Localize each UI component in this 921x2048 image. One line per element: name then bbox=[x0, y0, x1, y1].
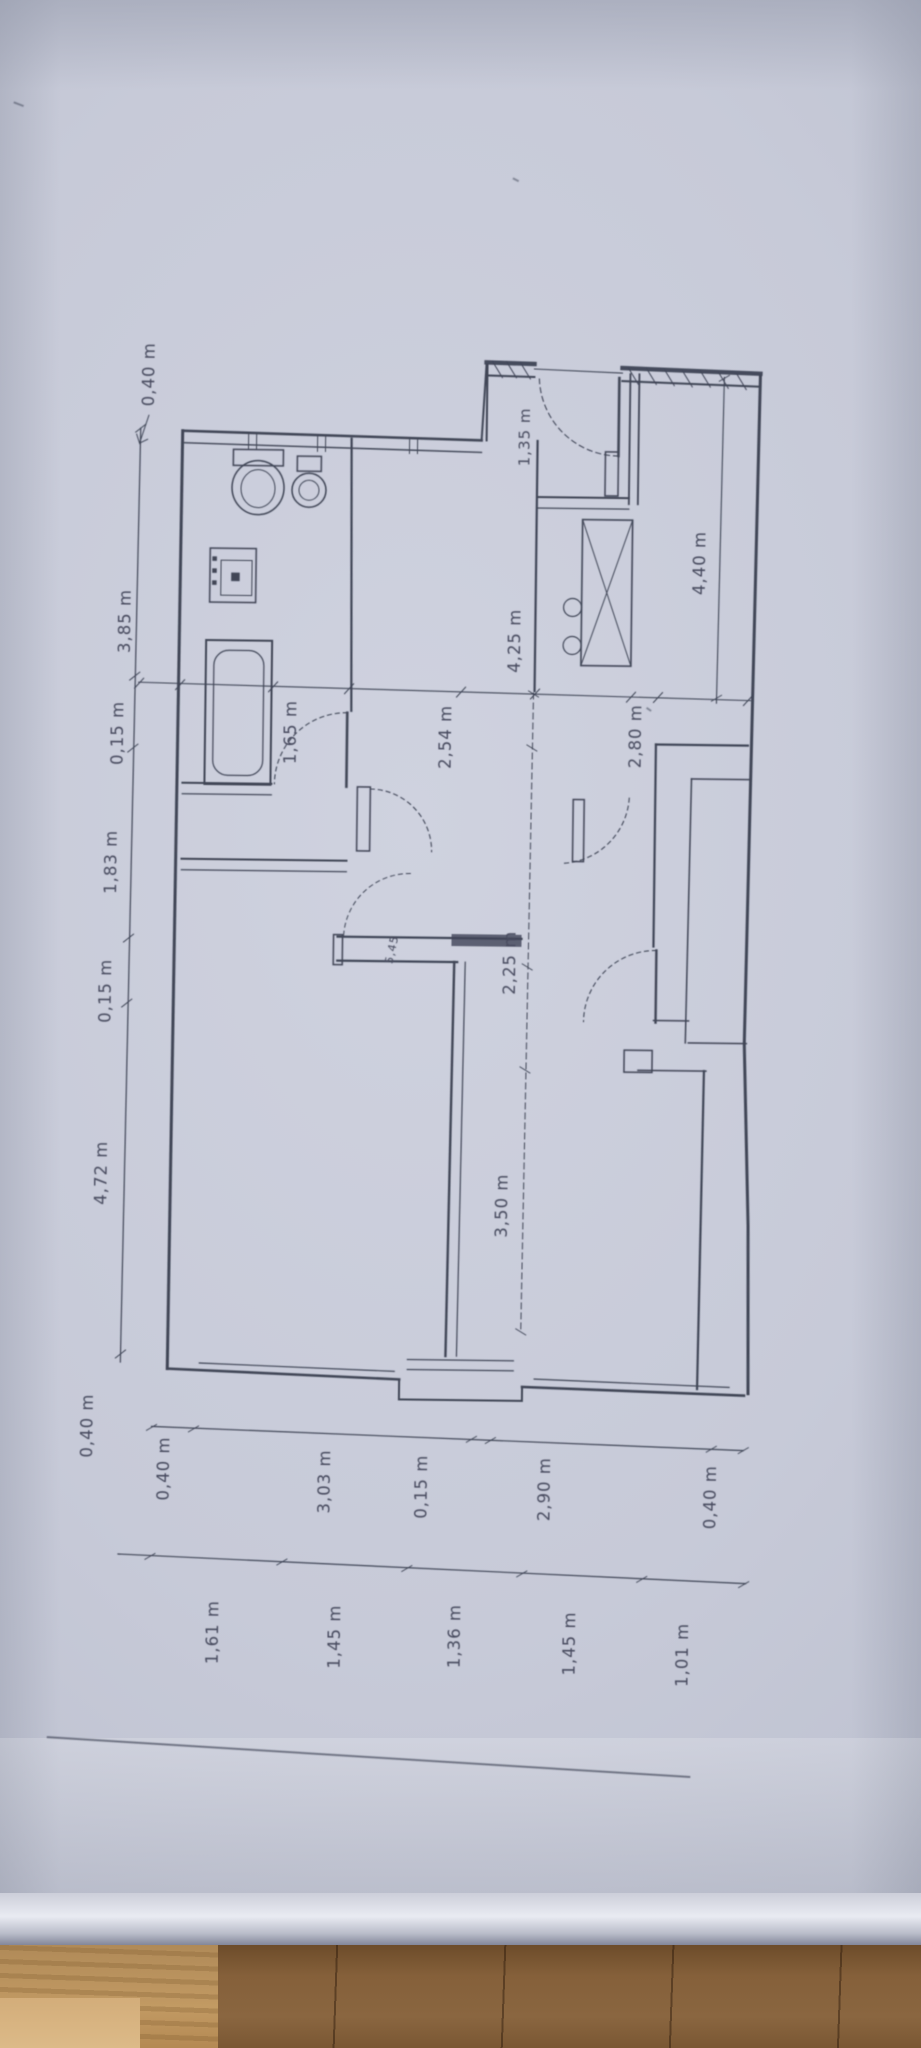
bidet-icon bbox=[292, 456, 327, 507]
vestibule-walls bbox=[486, 364, 640, 509]
toilet-icon bbox=[232, 449, 285, 515]
bathroom-walls bbox=[182, 437, 354, 796]
dim-corridor: 2,25 m bbox=[500, 931, 520, 995]
dim-bottom-outer-0: 0,40 m bbox=[154, 1436, 174, 1500]
kitchen-door bbox=[584, 950, 657, 1023]
central-vertical-dimension-line bbox=[516, 691, 539, 1335]
interior-dimension-line bbox=[134, 678, 752, 706]
dim-left-2: 0,15 m bbox=[108, 701, 128, 765]
dim-bottom-outer-1: 3,03 m bbox=[314, 1449, 334, 1513]
dim-hall: 2,54 m bbox=[436, 705, 456, 769]
dim-bottom-inner-0: 1,61 m bbox=[203, 1600, 223, 1664]
dim-left-1: 3,85 m bbox=[115, 589, 135, 653]
dim-bottom-inner-3: 1,45 m bbox=[560, 1611, 580, 1675]
bottom-dimension-chain-outer bbox=[146, 1424, 748, 1453]
wardrobe-icon bbox=[563, 519, 633, 666]
dim-vestibule: 1,35 m bbox=[515, 407, 534, 466]
floor-plan-drawing: 0,40 m 3,85 m 0,15 m 1,83 m 0,15 m 4,72 … bbox=[0, 0, 921, 2048]
dim-bottom-inner-2: 1,36 m bbox=[445, 1604, 465, 1668]
stray-photocopy-line bbox=[0, 103, 710, 1777]
right-room-walls bbox=[620, 744, 750, 1389]
dim-center-span: 4,25 m bbox=[505, 609, 525, 673]
bottom-dimension-chain-inner bbox=[118, 1553, 749, 1588]
dim-left-3: 1,83 m bbox=[101, 830, 121, 894]
washing-machine-icon bbox=[210, 548, 257, 603]
right-room-door bbox=[562, 797, 629, 864]
dim-left-0: 0,40 m bbox=[139, 342, 159, 406]
dim-bottom-inner-4: 1,01 m bbox=[672, 1623, 692, 1687]
dim-bottom-outer-2: 0,15 m bbox=[411, 1455, 431, 1519]
dim-bottom-outer-4: 0,40 m bbox=[700, 1465, 720, 1529]
dim-right-side: 4,40 m bbox=[690, 531, 710, 595]
right-vertical-dimension-line bbox=[711, 375, 729, 703]
dim-bottom-outer-3: 2,90 m bbox=[534, 1457, 554, 1521]
photo-of-floor-plan: 0,40 m 3,85 m 0,15 m 1,83 m 0,15 m 4,72 … bbox=[0, 0, 921, 2048]
dim-left-4: 0,15 m bbox=[95, 959, 115, 1023]
entrance-door bbox=[538, 377, 619, 456]
left-dimension-chain bbox=[115, 415, 149, 1362]
dim-left-5: 4,72 m bbox=[91, 1141, 111, 1205]
dim-bathroom: 1,65 m bbox=[281, 700, 301, 764]
dim-bottom-inner-1: 1,45 m bbox=[325, 1604, 345, 1668]
central-walls bbox=[175, 437, 537, 1357]
dim-right-room: 2,80 m bbox=[626, 704, 646, 768]
dim-left-room: 3,50 m bbox=[492, 1174, 512, 1238]
bathtub-icon bbox=[204, 640, 272, 785]
dim-left-6: 0,40 m bbox=[77, 1393, 97, 1457]
